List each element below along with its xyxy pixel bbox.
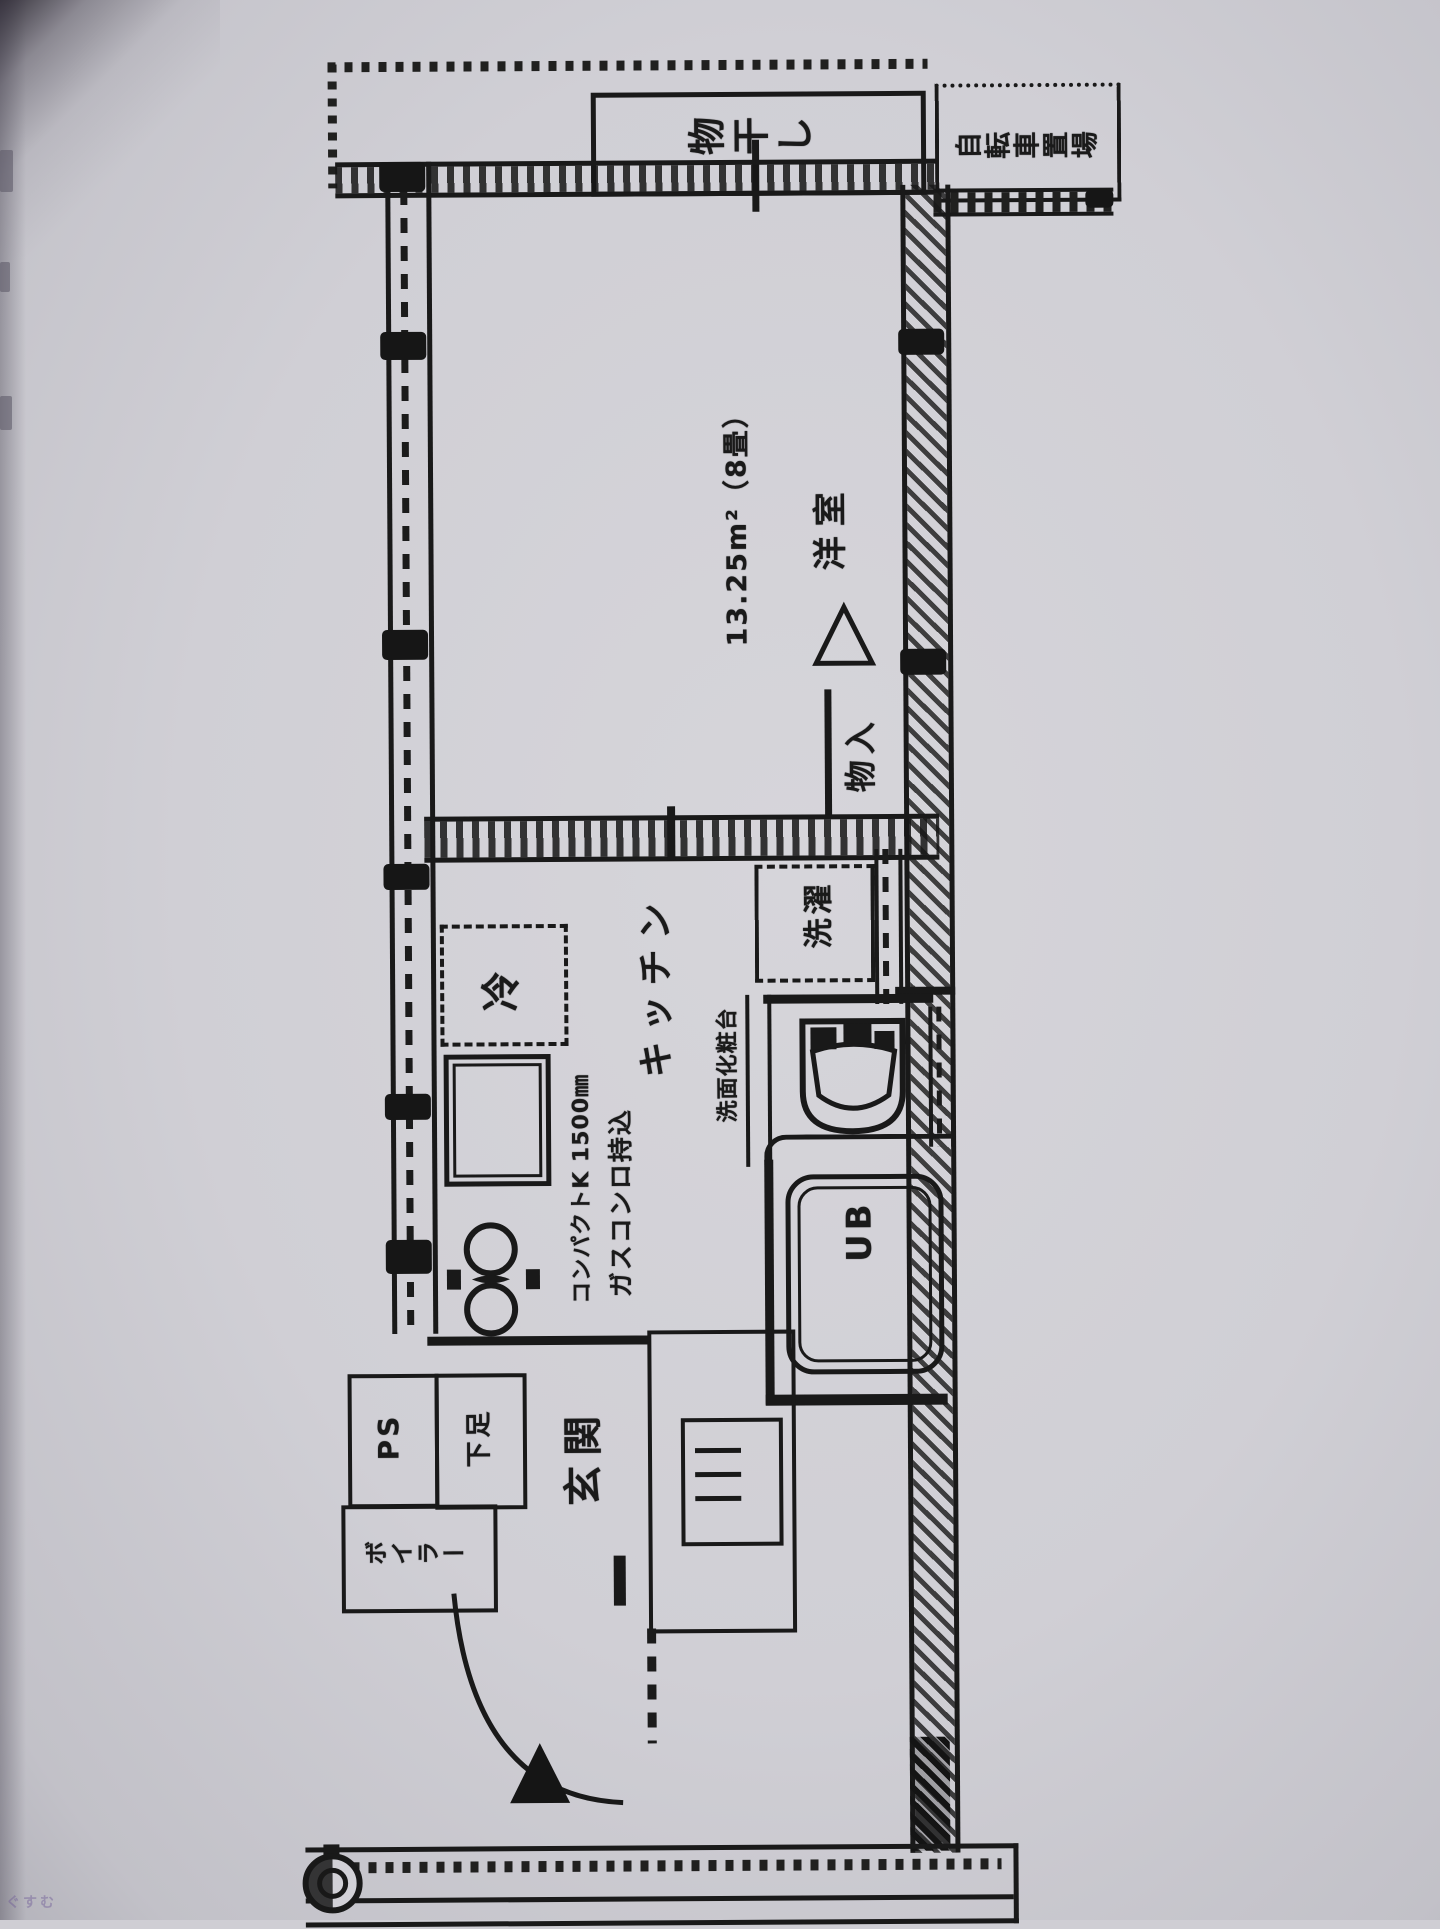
closet-triangle-mark	[816, 607, 872, 663]
toilet-icon	[802, 1021, 903, 1132]
two-burner-stove-icon	[447, 1225, 541, 1334]
floor-plan: 物干し 自転車置場 13.25m²（8畳） 洋室 物入 冷 キッチン コンパクト…	[0, 0, 1440, 1924]
entrance-arrow-icon	[510, 1743, 570, 1803]
photo-watermark-text: ぐすむ	[6, 1892, 57, 1912]
fixture-shapes	[0, 0, 1440, 1924]
water-meter-icon	[305, 1844, 359, 1910]
